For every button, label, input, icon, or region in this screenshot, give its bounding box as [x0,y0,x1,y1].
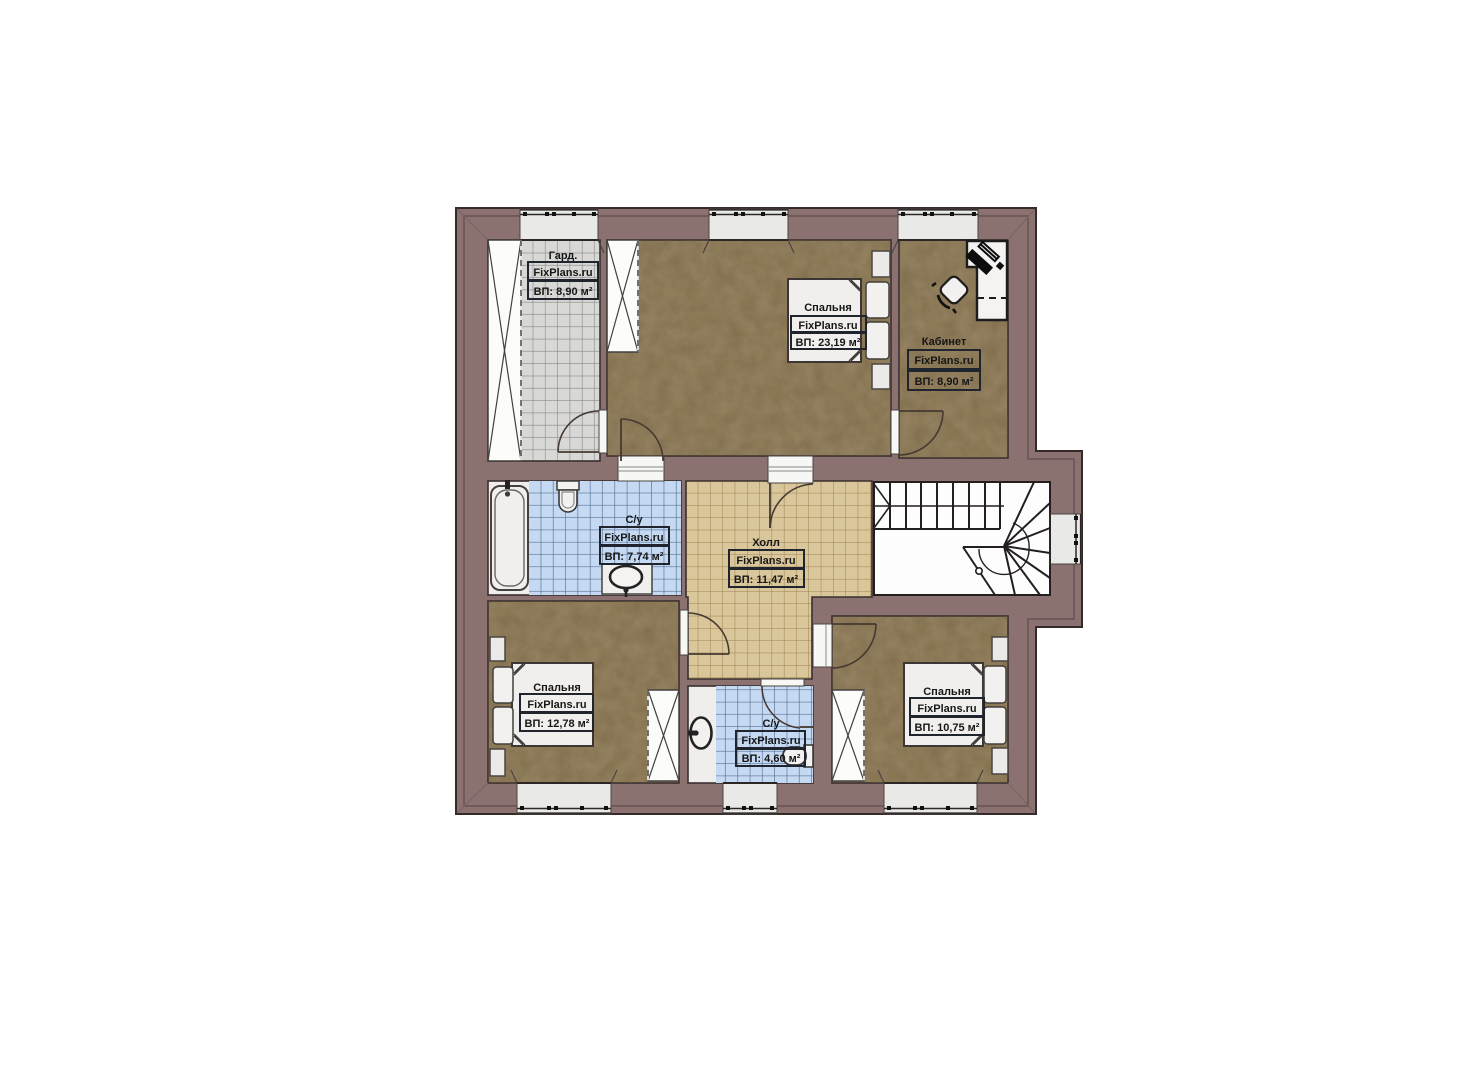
svg-text:С/у: С/у [625,514,643,526]
svg-text:Спальня: Спальня [533,682,581,694]
svg-text:ВП: 11,47 м²: ВП: 11,47 м² [734,574,799,586]
svg-text:ВП: 8,90 м²: ВП: 8,90 м² [534,286,593,298]
svg-text:Спальня: Спальня [923,686,971,698]
svg-text:ВП: 23,19 м²: ВП: 23,19 м² [796,337,861,349]
svg-text:FixPlans.ru: FixPlans.ru [917,703,976,715]
svg-text:С/у: С/у [762,718,780,730]
svg-text:Спальня: Спальня [804,302,852,314]
svg-text:FixPlans.ru: FixPlans.ru [736,555,795,567]
svg-text:Холл: Холл [752,537,780,549]
svg-text:ВП: 10,75 м²: ВП: 10,75 м² [915,722,980,734]
svg-text:FixPlans.ru: FixPlans.ru [741,735,800,747]
svg-text:FixPlans.ru: FixPlans.ru [604,532,663,544]
svg-text:Гард.: Гард. [549,250,578,262]
svg-text:FixPlans.ru: FixPlans.ru [533,267,592,279]
svg-text:ВП: 7,74 м²: ВП: 7,74 м² [605,551,664,563]
svg-text:ВП: 8,90 м²: ВП: 8,90 м² [915,376,974,388]
svg-text:Кабинет: Кабинет [922,336,967,348]
svg-text:FixPlans.ru: FixPlans.ru [527,699,586,711]
svg-text:ВП: 4,60 м²: ВП: 4,60 м² [742,753,801,765]
svg-text:ВП: 12,78 м²: ВП: 12,78 м² [525,718,590,730]
svg-text:FixPlans.ru: FixPlans.ru [798,320,857,332]
svg-text:FixPlans.ru: FixPlans.ru [914,355,973,367]
